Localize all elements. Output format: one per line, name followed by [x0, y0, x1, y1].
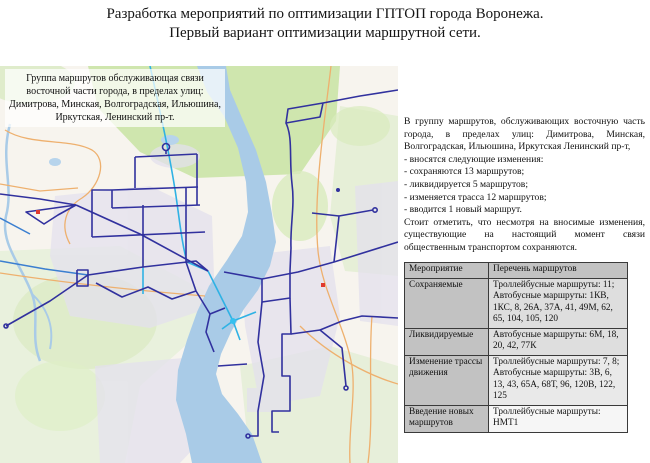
header-routes: Перечень маршрутов — [489, 263, 628, 279]
change-list-item: - ликвидируется 5 маршрутов; — [404, 179, 645, 192]
table-row: Изменение трассы движения Троллейбусные … — [405, 355, 628, 405]
routes-cell: Троллейбусные маршруты: НМТ1 — [489, 405, 628, 432]
description-intro: В группу маршрутов, обслуживающих восточ… — [404, 116, 645, 154]
description-note: Стоит отметить, что несмотря на вносимые… — [404, 217, 645, 255]
table-header-row: Мероприятие Перечень маршрутов — [405, 263, 628, 279]
routes-cell: Троллейбусные маршруты: 7, 8; Автобусные… — [489, 355, 628, 405]
table-row: Ликвидируемые Автобусные маршруты: 6М, 1… — [405, 328, 628, 355]
description-panel: В группу маршрутов, обслуживающих восточ… — [404, 116, 645, 255]
change-list-item: - сохраняются 13 маршрутов; — [404, 166, 645, 179]
change-list-item: - вводится 1 новый маршрут. — [404, 204, 645, 217]
measure-cell: Введение новых маршрутов — [405, 405, 489, 432]
slide: Разработка мероприятий по оптимизации ГП… — [0, 0, 650, 463]
title-line-1: Разработка мероприятий по оптимизации ГП… — [0, 5, 650, 24]
measure-cell: Ликвидируемые — [405, 328, 489, 355]
measure-cell: Изменение трассы движения — [405, 355, 489, 405]
routes-cell: Троллейбусные маршруты: 11; Автобусные м… — [489, 278, 628, 328]
city-map: Группа маршрутов обслуживающая связи вос… — [0, 66, 398, 463]
map-caption-box: Группа маршрутов обслуживающая связи вос… — [5, 69, 225, 127]
routes-table: Мероприятие Перечень маршрутов Сохраняем… — [404, 262, 628, 433]
table-row: Сохраняемые Троллейбусные маршруты: 11; … — [405, 278, 628, 328]
routes-cell: Автобусные маршруты: 6М, 18, 20, 42, 77К — [489, 328, 628, 355]
page-title: Разработка мероприятий по оптимизации ГП… — [0, 5, 650, 43]
header-measure: Мероприятие — [405, 263, 489, 279]
table-row: Введение новых маршрутов Троллейбусные м… — [405, 405, 628, 432]
title-line-2: Первый вариант оптимизации маршрутной се… — [0, 24, 650, 43]
change-list-item: - изменяется трасса 12 маршрутов; — [404, 192, 645, 205]
change-list-item: - вносятся следующие изменения: — [404, 154, 645, 167]
measure-cell: Сохраняемые — [405, 278, 489, 328]
